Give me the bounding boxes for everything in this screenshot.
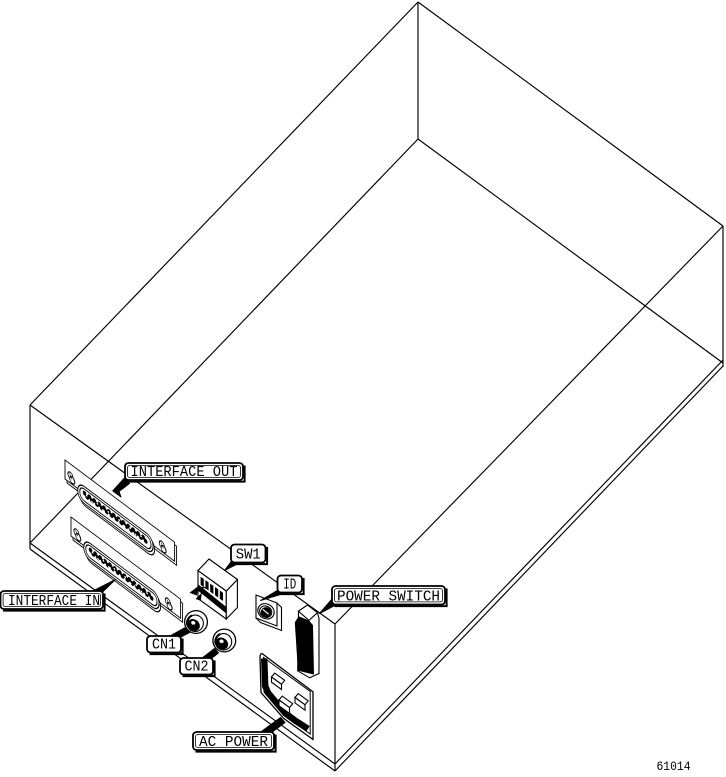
svg-text:CN2: CN2 <box>185 660 209 676</box>
svg-text:INTERFACE OUT: INTERFACE OUT <box>131 465 238 481</box>
svg-text:CN1: CN1 <box>152 638 176 654</box>
svg-text:AC POWER: AC POWER <box>199 735 268 751</box>
svg-text:INTERFACE IN: INTERFACE IN <box>8 594 100 610</box>
svg-text:SW1: SW1 <box>236 548 261 564</box>
svg-text:61014: 61014 <box>657 760 691 774</box>
svg-text:POWER SWITCH: POWER SWITCH <box>337 590 440 606</box>
svg-text:ID: ID <box>283 578 296 594</box>
